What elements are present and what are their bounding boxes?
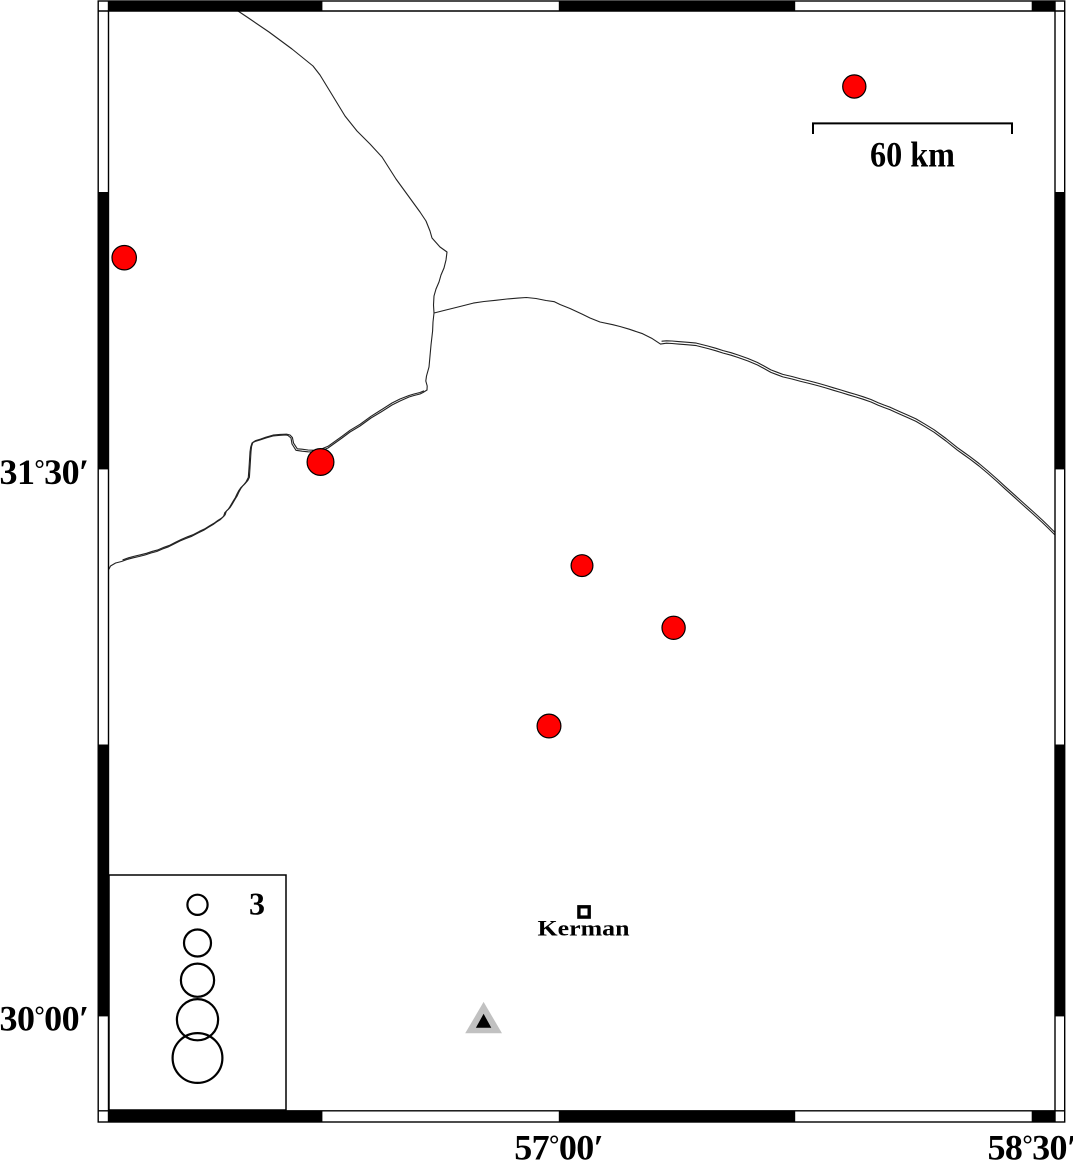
svg-text:31°30′: 31°30′ (0, 452, 89, 492)
svg-text:60 km: 60 km (870, 135, 955, 175)
svg-text:30°00′: 30°00′ (0, 999, 89, 1039)
svg-text:3: 3 (249, 886, 265, 922)
svg-text:57°00′: 57°00′ (514, 1128, 603, 1160)
svg-text:58°30′: 58°30′ (988, 1128, 1073, 1160)
svg-text:Kerman: Kerman (538, 916, 631, 941)
